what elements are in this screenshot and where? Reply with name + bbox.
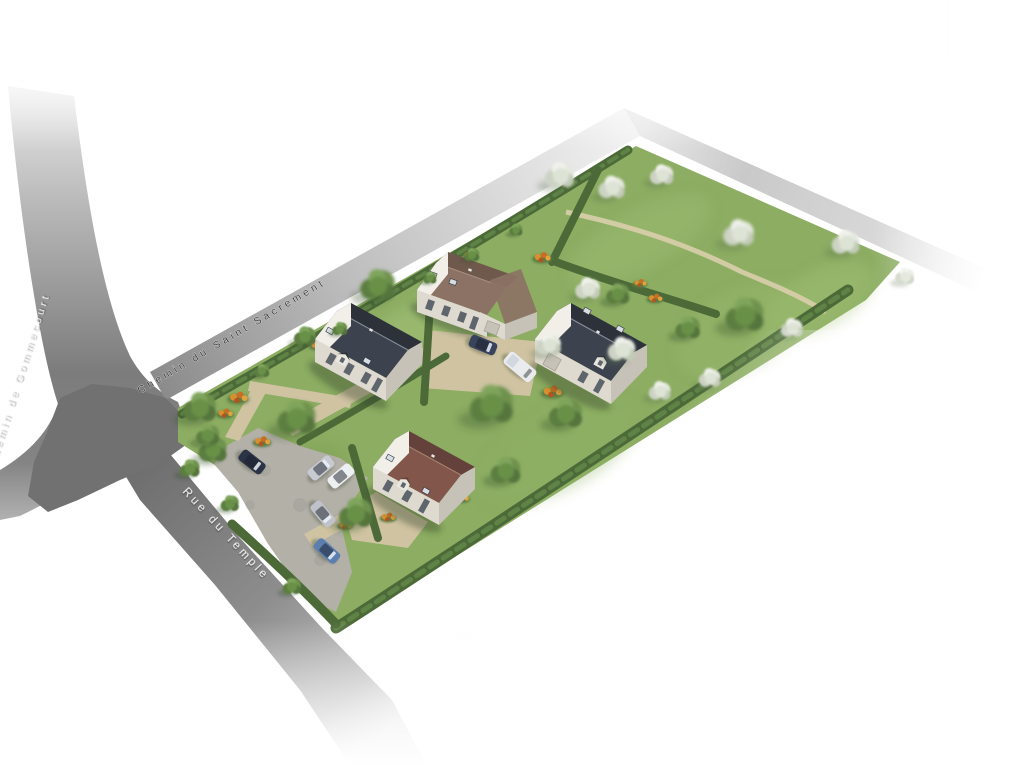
edge-fade-bottom-right [430,330,1024,768]
shrub [216,495,239,514]
site-plan-page: Chemin du Saint Sacrement Chemin de Gomm… [0,0,1024,768]
site-plan-rendering: Chemin du Saint Sacrement Chemin de Gomm… [0,0,1024,768]
